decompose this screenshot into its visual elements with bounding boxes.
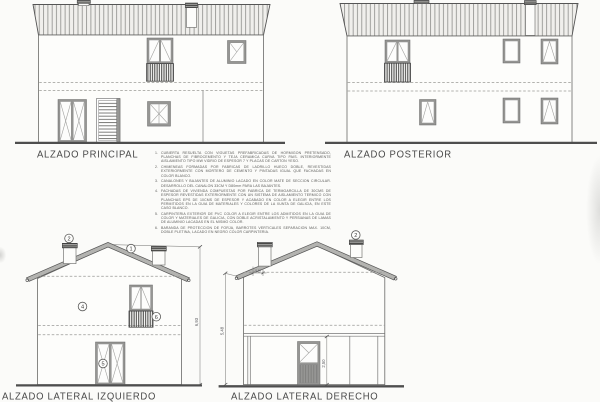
window (420, 100, 437, 126)
window (541, 39, 558, 64)
balcony-window (385, 40, 411, 82)
note-text: CARPINTERIA EXTERIOR DE PVC COLOR A ELEG… (161, 212, 331, 225)
chimney-cap (414, 0, 429, 3)
title-alzado-posterior: ALZADO POSTERIOR (344, 149, 452, 161)
elevation-lateral-derecho: 2 0,40 (219, 231, 404, 387)
callout-roof: 1 (127, 244, 136, 253)
dimension-total-height: 6,93 (194, 245, 202, 386)
chimney-cap (62, 243, 77, 248)
callout-facade-number: 4 (81, 305, 84, 311)
callout-door: 5 (99, 359, 108, 368)
callout-chimney: 2 (352, 231, 361, 240)
note-item: 3. CANALONES Y BAJANTES DE ALUMINIO LACA… (155, 179, 331, 187)
balcony-window (129, 285, 153, 327)
title-alzado-lateral-izquierdo: ALZADO LATERAL IZQUIERDO (2, 391, 156, 402)
chimney-cap (349, 240, 363, 245)
balcony-railing (129, 311, 153, 327)
note-item: 6. BARANDA DE PROTECCION DE FORJA, BARRO… (155, 226, 331, 234)
elevation-principal (15, 0, 285, 143)
note-text: CUBIERTA RESUELTA CON VIGUETAS PREFABRIC… (161, 151, 331, 164)
title-alzado-lateral-derecho: ALZADO LATERAL DERECHO (231, 391, 378, 402)
note-text: CHIMENEAS FORMADAS POR FABRICAS DE LADRI… (161, 165, 331, 178)
chimney-cap (77, 0, 90, 3)
chimney (64, 248, 77, 264)
french-door (58, 100, 87, 143)
chimney (351, 244, 363, 257)
callout-door-number: 5 (101, 362, 104, 368)
callout-facade: 4 (78, 302, 87, 311)
chimney (153, 251, 166, 265)
balcony-railing (147, 64, 174, 82)
note-item: 2. CHIMENEAS FORMADAS POR FABRICAS DE LA… (155, 165, 331, 178)
roof-band (340, 4, 578, 37)
callout-roof-number: 1 (129, 247, 132, 253)
elevation-posterior (325, 0, 597, 143)
dimension-label: 2,50 (321, 359, 326, 368)
window (503, 39, 520, 63)
balcony-railing (385, 63, 411, 82)
note-item: 4. FACHADAS DE VIVIENDA COMPUESTAS POR F… (155, 189, 331, 210)
scan-smudge (586, 155, 600, 265)
roof-band (33, 5, 270, 36)
note-text: FACHADAS DE VIVIENDA COMPUESTAS POR FABR… (161, 189, 331, 210)
balcony-window (147, 38, 174, 81)
window (541, 98, 558, 124)
dimension-label: 0,40 (255, 268, 261, 272)
roller-shutter (97, 99, 121, 143)
chimney-cap (185, 3, 197, 8)
chimney-cap (257, 242, 272, 247)
specification-notes: 1. CUBIERTA RESUELTA CON VIGUETAS PREFAB… (155, 151, 331, 236)
chimney (526, 4, 536, 35)
callout-chimney-number: 2 (67, 237, 70, 243)
title-alzado-principal: ALZADO PRINCIPAL (37, 149, 138, 161)
chimney-cap (524, 1, 536, 5)
entry-door (298, 342, 321, 385)
chimney (259, 247, 272, 267)
drawing-sheet: 2 1 4 6 5 6,93 (0, 0, 600, 400)
window (228, 41, 247, 64)
dimension-label: 6,93 (194, 317, 199, 326)
dimension-label: 5,48 (220, 326, 225, 335)
callout-chimney: 2 (65, 234, 74, 243)
callout-railing-number: 6 (155, 315, 158, 321)
elevation-lateral-izquierdo: 2 1 4 6 5 6,93 (16, 234, 202, 386)
facade-wall (347, 36, 572, 142)
chimney (187, 8, 197, 28)
note-text: BARANDA DE PROTECCION DE FORJA, BARROTES… (161, 226, 331, 234)
chimney-cap (151, 246, 166, 251)
scan-smudge (0, 247, 6, 263)
callout-railing: 6 (152, 312, 161, 321)
note-text: CANALONES Y BAJANTES DE ALUMINIO LACADO … (161, 179, 331, 187)
callout-chimney-number: 2 (354, 233, 357, 239)
window (503, 98, 520, 123)
dimension-eave-height: 5,48 (220, 272, 237, 387)
note-item: 5. CARPINTERIA EXTERIOR DE PVC COLOR A E… (155, 212, 331, 225)
window (148, 102, 171, 127)
note-item: 1. CUBIERTA RESUELTA CON VIGUETAS PREFAB… (155, 151, 331, 164)
